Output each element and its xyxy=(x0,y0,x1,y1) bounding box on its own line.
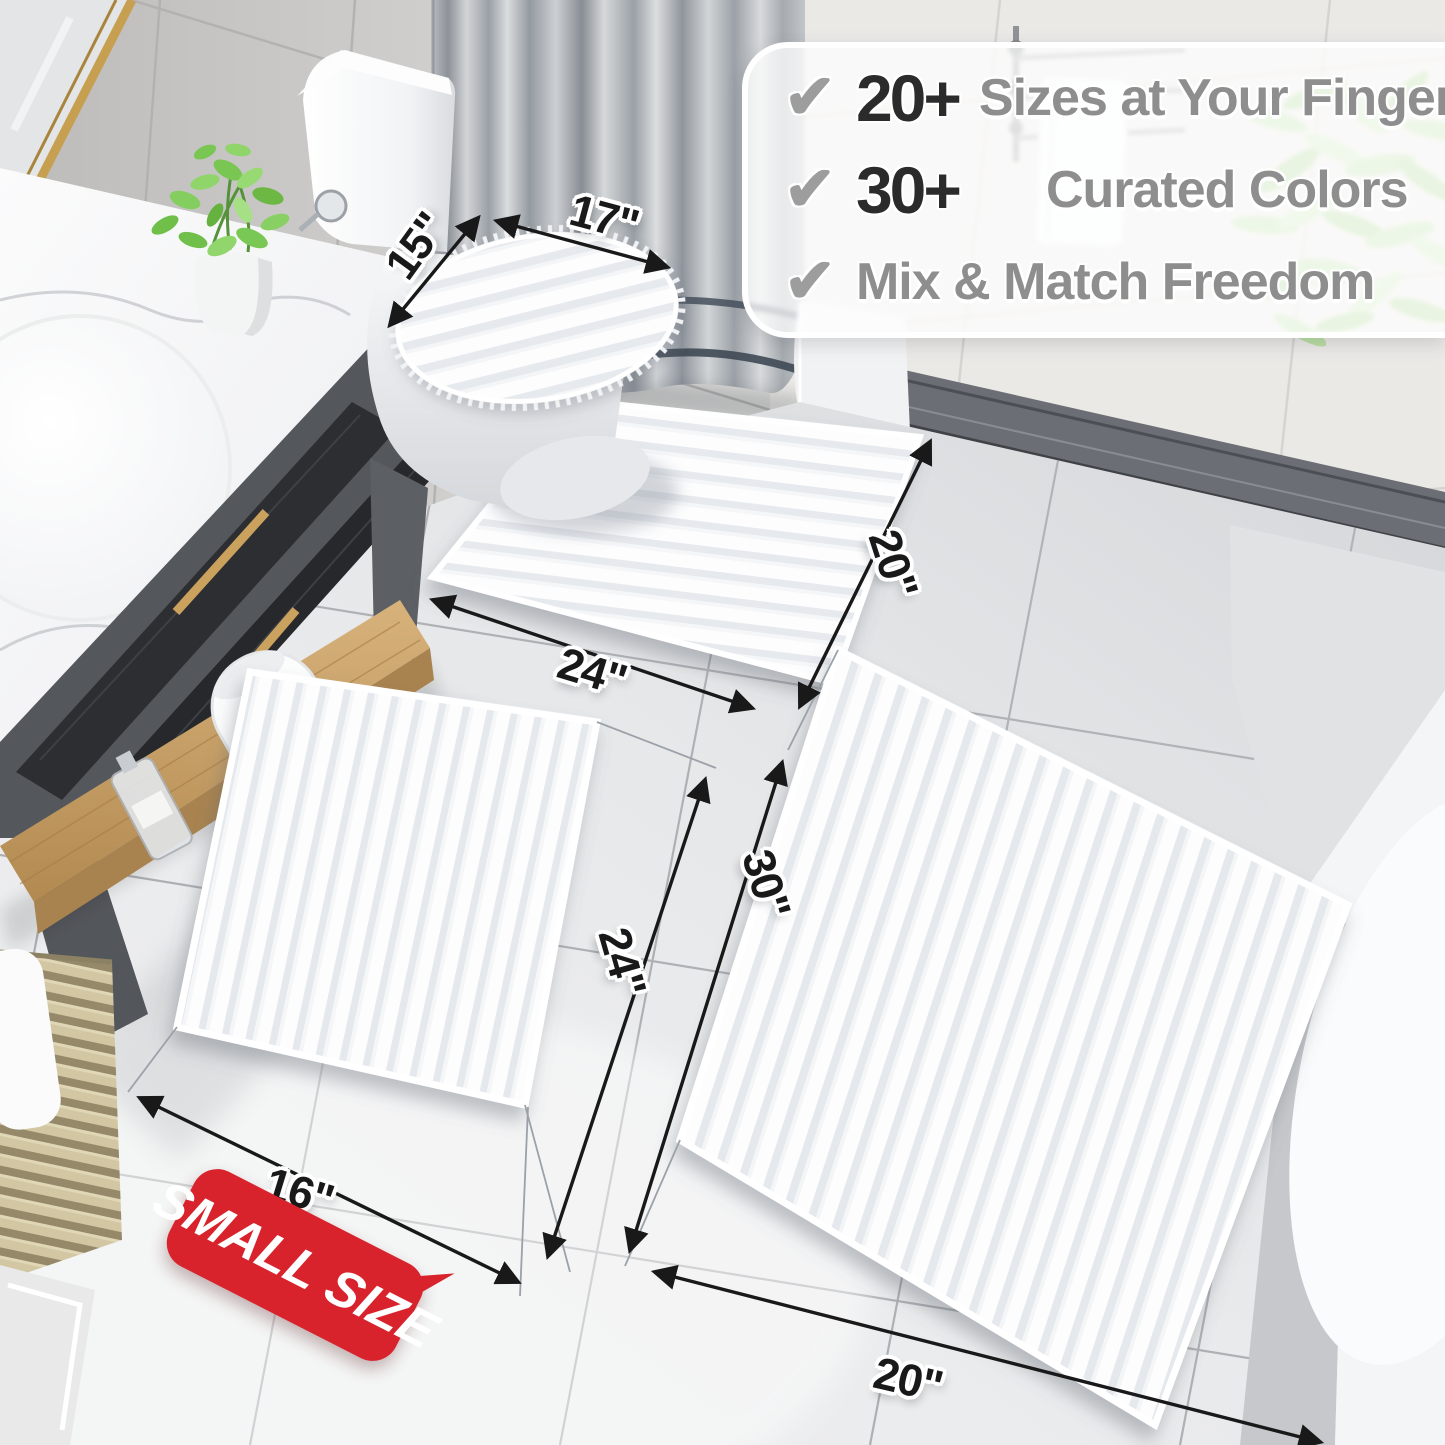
checkmark-icon: ✔ xyxy=(784,251,836,313)
product-image: 15" 17" 24" 20" 24" 30" 16" 20" ✔ 20+ Si… xyxy=(0,0,1445,1445)
checkmark-icon: ✔ xyxy=(784,67,836,129)
callout-number: 20+ xyxy=(856,65,959,131)
callout-row-mix-match: ✔ Mix & Match Freedom xyxy=(784,240,1437,324)
callout-number: 30+ xyxy=(856,157,1026,223)
flush-handle xyxy=(316,191,346,221)
callout-text: Sizes at Your Fingertips xyxy=(979,72,1445,124)
feature-callout: ✔ 20+ Sizes at Your Fingertips ✔ 30+ Cur… xyxy=(742,42,1445,338)
checkmark-icon: ✔ xyxy=(784,159,836,221)
callout-row-colors: ✔ 30+ Curated Colors xyxy=(784,148,1437,232)
bath-mat-small xyxy=(177,672,597,1105)
callout-row-sizes: ✔ 20+ Sizes at Your Fingertips xyxy=(784,56,1437,140)
callout-text: Curated Colors xyxy=(1046,164,1408,216)
callout-text: Mix & Match Freedom xyxy=(856,256,1374,308)
